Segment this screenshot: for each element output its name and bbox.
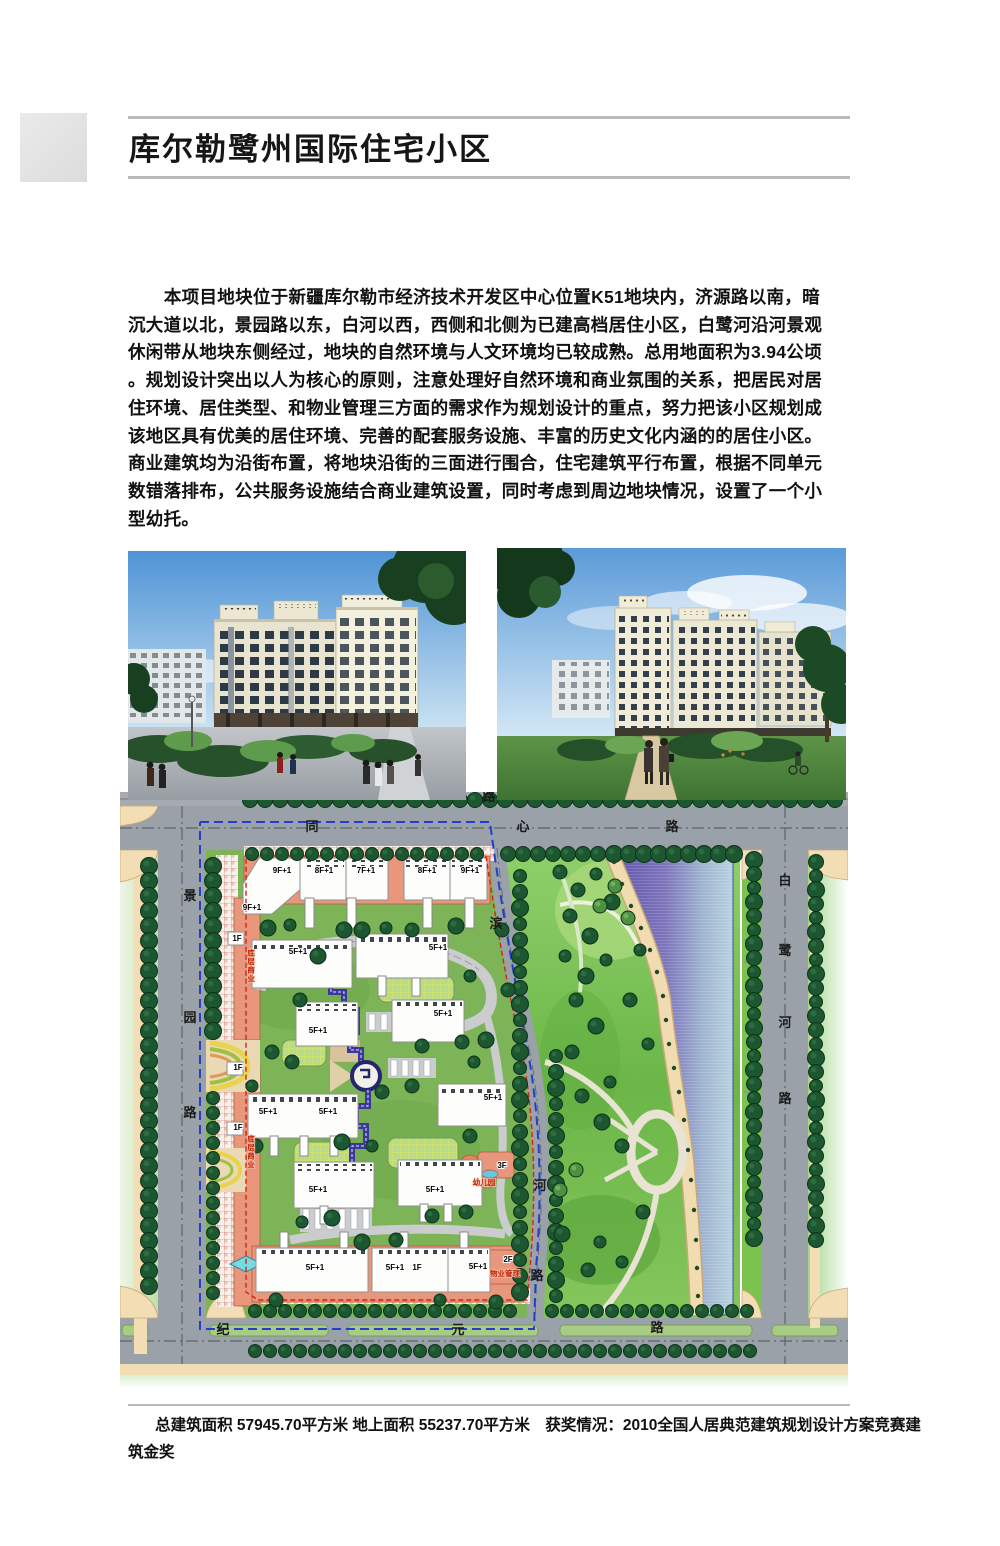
svg-text:幼儿园: 幼儿园 (473, 1177, 496, 1187)
decorative-gray-block (20, 113, 87, 182)
svg-text:河: 河 (778, 1015, 791, 1030)
svg-text:底层商业: 底层商业 (246, 948, 255, 983)
svg-text:白: 白 (778, 873, 791, 888)
svg-text:8F+1: 8F+1 (418, 866, 437, 875)
svg-text:5F+1: 5F+1 (259, 1107, 278, 1116)
paragraph-line: 沉大道以北，景园路以东，白河以西，西侧和北侧为已建高档居住小区，白鹭河沿河景观 (128, 312, 858, 340)
svg-text:元: 元 (451, 1322, 464, 1337)
rendering-photo-left (128, 551, 466, 800)
svg-text:景: 景 (183, 888, 196, 903)
site-plan-graphics (120, 792, 848, 1388)
svg-text:同: 同 (305, 819, 318, 834)
svg-text:路: 路 (482, 792, 496, 804)
header-rule-bottom (128, 176, 850, 179)
document-page: { "header": { "title": "库尔勒鹭州国际住宅小区" }, … (0, 0, 1000, 1546)
svg-text:7F+1: 7F+1 (357, 866, 376, 875)
paragraph-line: 商业建筑均为沿街布置，将地块沿街的三面进行围合，住宅建筑平行布置，根据不同单元 (128, 450, 858, 478)
svg-text:5F+1: 5F+1 (429, 943, 448, 952)
paragraph-line: 。规划设计突出以人为核心的原则，注意处理好自然环境和商业氛围的关系，把居民对居 (128, 367, 858, 395)
svg-text:3F: 3F (497, 1161, 506, 1170)
svg-text:纪: 纪 (216, 1322, 229, 1337)
paragraph-line: 数错落排布，公共服务设施结合商业建筑设置，同时考虑到周边地块情况，设置了一个小 (128, 478, 858, 506)
paragraph-line: 住环境、居住类型、和物业管理三方面的需求作为规划设计的重点，努力把该小区规划成 (128, 395, 858, 423)
svg-text:5F+1: 5F+1 (306, 1263, 325, 1272)
svg-text:1F: 1F (233, 1063, 242, 1072)
svg-text:鹭: 鹭 (778, 943, 792, 958)
svg-text:路: 路 (183, 1105, 197, 1120)
project-description: 本项目地块位于新疆库尔勒市经济技术开发区中心位置K51地块内，济源路以南，暗 沉… (128, 284, 858, 533)
footer-statistics: 总建筑面积 57945.70平方米 地上面积 55237.70平方米 获奖情况：… (128, 1412, 858, 1466)
svg-text:1F: 1F (412, 1263, 421, 1272)
paragraph-line: 休闲带从地块东侧经过，地块的自然环境与人文环境均已较成熟。总用地面积为3.94公… (128, 339, 858, 367)
master-site-plan: 同心路路景园路白鹭河路滨河路纪元路9F+18F+17F+18F+19F+19F+… (120, 792, 848, 1388)
header-rule-top (128, 116, 850, 119)
svg-text:8F+1: 8F+1 (315, 866, 334, 875)
svg-text:物业管理: 物业管理 (490, 1268, 520, 1278)
svg-text:滨: 滨 (489, 916, 502, 931)
paragraph-line: 该地区具有优美的居住环境、完善的配套服务设施、丰富的历史文化内涵的的居住小区。 (128, 423, 858, 451)
svg-text:1F: 1F (233, 1123, 242, 1132)
svg-text:路: 路 (530, 1268, 544, 1283)
svg-text:园: 园 (183, 1010, 196, 1025)
svg-text:9F+1: 9F+1 (461, 866, 480, 875)
rendering-photo-right (497, 548, 846, 800)
svg-text:5F+1: 5F+1 (386, 1263, 405, 1272)
footer-rule (128, 1404, 850, 1406)
footer-line: 筑金奖 (128, 1439, 858, 1466)
background-building (552, 660, 610, 718)
svg-text:路: 路 (650, 1320, 664, 1335)
svg-text:河: 河 (533, 1178, 546, 1193)
svg-text:5F+1: 5F+1 (319, 1107, 338, 1116)
footer-line: 总建筑面积 57945.70平方米 地上面积 55237.70平方米 获奖情况：… (128, 1412, 858, 1439)
svg-text:2F: 2F (503, 1255, 512, 1264)
svg-text:9F+1: 9F+1 (273, 866, 292, 875)
svg-text:5F+1: 5F+1 (309, 1026, 328, 1035)
paragraph-line: 本项目地块位于新疆库尔勒市经济技术开发区中心位置K51地块内，济源路以南，暗 (128, 284, 858, 312)
paragraph-line: 型幼托。 (128, 506, 858, 534)
svg-text:5F+1: 5F+1 (469, 1262, 488, 1271)
svg-text:1F: 1F (232, 934, 241, 943)
svg-text:路: 路 (778, 1091, 792, 1106)
svg-text:路: 路 (665, 819, 679, 834)
main-building (214, 595, 418, 727)
svg-text:心: 心 (516, 819, 529, 834)
svg-text:5F+1: 5F+1 (426, 1185, 445, 1194)
svg-text:5F+1: 5F+1 (434, 1009, 453, 1018)
svg-text:9F+1: 9F+1 (243, 903, 262, 912)
svg-text:5F+1: 5F+1 (309, 1185, 328, 1194)
svg-text:5F+1: 5F+1 (289, 947, 308, 956)
svg-text:5F+1: 5F+1 (484, 1093, 503, 1102)
svg-text:底层商业: 底层商业 (246, 1134, 255, 1169)
page-title: 库尔勒鹭州国际住宅小区 (129, 124, 492, 169)
